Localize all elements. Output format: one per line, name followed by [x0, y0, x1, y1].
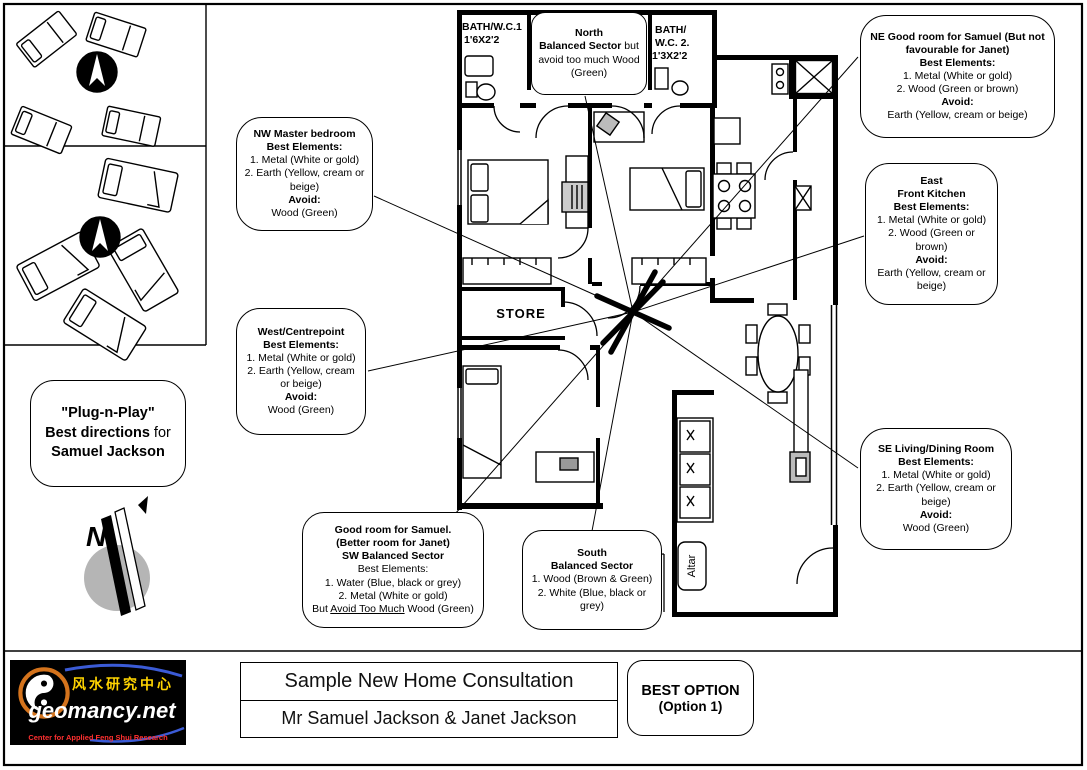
kitchen-counter — [714, 118, 740, 144]
bath1-fixtures — [465, 56, 495, 100]
stove — [772, 64, 788, 94]
client-names: Mr Samuel Jackson & Janet Jackson — [241, 700, 617, 738]
consultation-title-box: Sample New Home Consultation Mr Samuel J… — [240, 662, 618, 738]
bath2-size-label: 1'3X2'2 — [652, 50, 688, 62]
sofa — [677, 418, 713, 522]
best-option-label: BEST OPTION — [641, 683, 739, 699]
tv-console — [790, 370, 810, 482]
plug-client-name: Samuel Jackson — [51, 444, 165, 460]
bedroom2-bed — [630, 168, 704, 210]
plug-quote: "Plug-n-Play" — [61, 405, 155, 421]
store-label: STORE — [496, 306, 546, 321]
callout-southwest: Good room for Samuel.(Better room for Ja… — [302, 512, 484, 628]
bath1-size-label: 1'6X2'2 — [464, 34, 500, 46]
consultation-title: Sample New Home Consultation — [241, 663, 617, 700]
altar-label: Altar — [686, 554, 698, 577]
master-dresser-tv — [562, 156, 588, 228]
callout-east: EastFront KitchenBest Elements:1. Metal … — [865, 163, 998, 305]
consultation-page: N — [0, 0, 1087, 770]
compass-n-label: N — [86, 521, 107, 552]
logo-chinese-text: 风水研究中心 — [72, 674, 174, 694]
callout-north: NorthBalanced Sector but avoid too much … — [531, 12, 647, 95]
callout-southeast: SE Living/Dining RoomBest Elements:1. Me… — [860, 428, 1012, 550]
best-option-box: BEST OPTION (Option 1) — [627, 660, 754, 736]
bath2-label2: W.C. 2. — [655, 37, 690, 49]
logo-domain-text: geomancy.net — [20, 698, 184, 724]
plug-n-play-box: "Plug-n-Play" Best directions for Samuel… — [30, 380, 186, 487]
bedroom3-bed — [463, 366, 501, 478]
compass-arrowhead-icon — [138, 496, 148, 514]
callout-northeast: NE Good room for Samuel (But not favoura… — [860, 15, 1055, 138]
bath2-label: BATH/ — [655, 24, 686, 36]
callout-northwest: NW Master bedroomBest Elements:1. Metal … — [236, 117, 373, 231]
shaft — [795, 60, 833, 94]
bedroom3-desk — [536, 452, 594, 482]
master-bed — [468, 160, 548, 224]
kitchen-table — [713, 163, 755, 229]
geomancy-logo[interactable]: 风水研究中心 geomancy.net Center for Applied F… — [10, 660, 186, 745]
site-compass: N — [84, 496, 150, 616]
best-option-sub: (Option 1) — [659, 699, 723, 714]
bed-direction-cluster-1 — [11, 11, 161, 154]
plug-rest: for — [150, 425, 171, 441]
master-wardrobe — [463, 258, 551, 284]
washer — [795, 186, 811, 210]
plug-bold: Best directions — [45, 425, 150, 441]
bath1-label: BATH/W.C.1 — [462, 21, 522, 33]
callout-west: West/CentrepointBest Elements:1. Metal (… — [236, 308, 366, 435]
bed-direction-cluster-2 — [16, 158, 179, 361]
bath2-fixtures — [655, 68, 688, 95]
callout-south: SouthBalanced Sector1. Wood (Brown & Gre… — [522, 530, 662, 630]
logo-tagline: Center for Applied Feng Shui Research — [12, 733, 184, 742]
